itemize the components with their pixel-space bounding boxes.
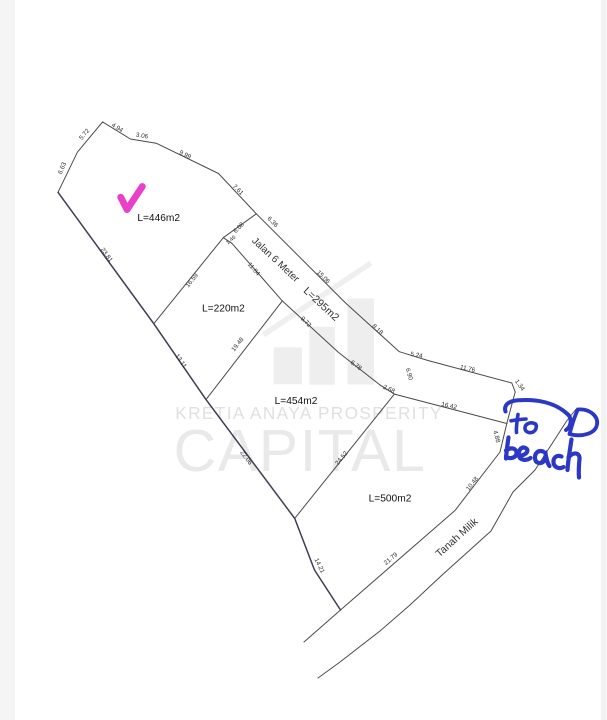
svg-text:L=454m2: L=454m2 [275,396,318,407]
svg-text:L=220m2: L=220m2 [202,304,245,315]
svg-text:L=500m2: L=500m2 [369,494,412,505]
svg-text:CAPITAL: CAPITAL [174,418,427,484]
svg-text:L=446m2: L=446m2 [137,213,180,224]
